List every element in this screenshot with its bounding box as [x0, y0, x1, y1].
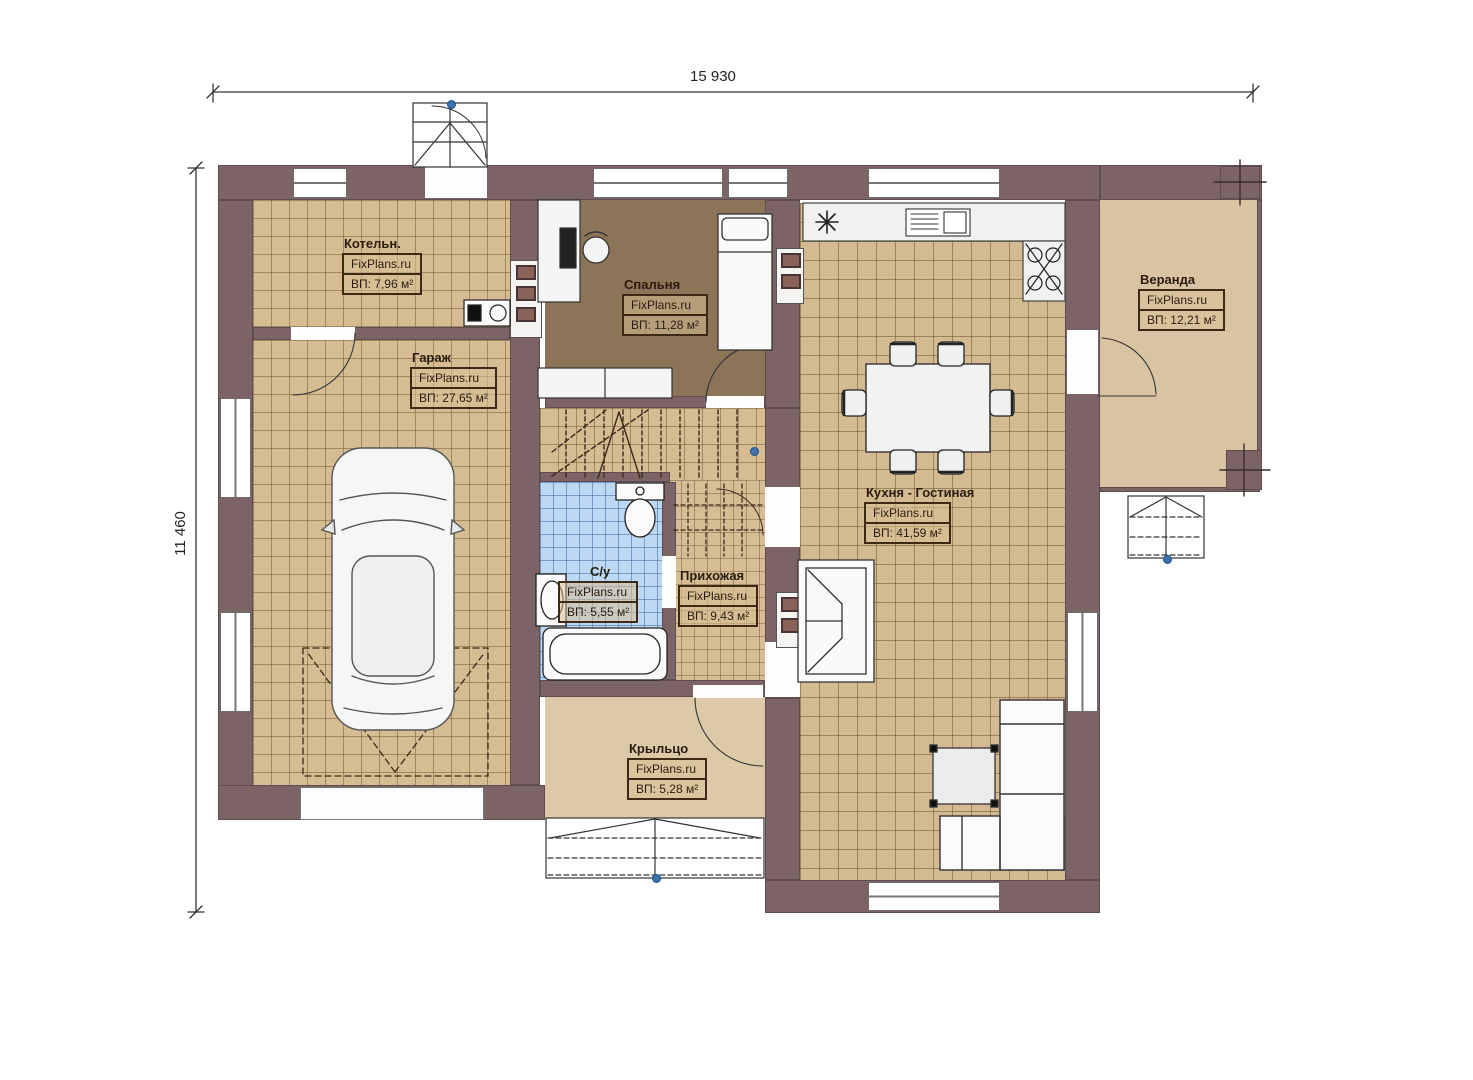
- coffee-table: [930, 745, 998, 807]
- room-name: Спальня: [624, 277, 708, 292]
- dimension-width-label: 15 930: [690, 68, 736, 85]
- room-watermark: FixPlans.ru: [866, 504, 949, 522]
- room-label-garage: Гараж FixPlans.ru ВП: 27,65 м²: [410, 350, 497, 409]
- room-watermark: FixPlans.ru: [412, 369, 495, 387]
- wardrobe: [538, 368, 672, 398]
- stairs-upper: [552, 410, 737, 478]
- room-label-kitchen-living: Кухня - Гостиная FixPlans.ru ВП: 41,59 м…: [864, 485, 974, 544]
- room-area: ВП: 5,28 м²: [629, 778, 705, 798]
- room-watermark: FixPlans.ru: [680, 587, 756, 605]
- room-watermark: FixPlans.ru: [1140, 291, 1223, 309]
- room-name: Прихожая: [680, 568, 758, 583]
- car: [322, 448, 464, 730]
- room-watermark: FixPlans.ru: [344, 255, 420, 273]
- stairs-lower: [674, 484, 763, 556]
- room-label-kotelnaya: Котельн. FixPlans.ru ВП: 7,96 м²: [342, 236, 422, 295]
- room-name: Кухня - Гостиная: [866, 485, 974, 500]
- node-dot: [447, 100, 456, 109]
- floor-plan-canvas: 15 930 11 460 Котельн. FixPlans.ru ВП: 7…: [0, 0, 1473, 1080]
- toilet: [616, 483, 664, 537]
- node-dot: [1163, 555, 1172, 564]
- bathtub: [543, 628, 667, 680]
- room-label-bedroom: Спальня FixPlans.ru ВП: 11,28 м²: [622, 277, 708, 336]
- room-watermark: FixPlans.ru: [560, 583, 636, 601]
- room-area: ВП: 41,59 м²: [866, 522, 949, 542]
- dimension-line-left: [188, 162, 204, 918]
- room-name: Гараж: [412, 350, 497, 365]
- room-watermark: FixPlans.ru: [624, 296, 706, 314]
- room-name: С/у: [590, 564, 638, 579]
- entry-steps-top: [413, 103, 487, 167]
- node-dot: [750, 447, 759, 456]
- desk: [538, 200, 580, 302]
- veranda-steps: [1128, 496, 1204, 558]
- room-name: Веранда: [1140, 272, 1225, 287]
- dining-table: [866, 364, 990, 452]
- bed: [718, 214, 772, 350]
- room-area: ВП: 7,96 м²: [344, 273, 420, 293]
- node-dot: [652, 874, 661, 883]
- dimension-height-label: 11 460: [172, 511, 189, 556]
- room-label-veranda: Веранда FixPlans.ru ВП: 12,21 м²: [1138, 272, 1225, 331]
- room-area: ВП: 12,21 м²: [1140, 309, 1223, 329]
- porch-steps: [546, 818, 764, 878]
- boiler: [464, 300, 510, 326]
- room-area: ВП: 11,28 м²: [624, 314, 706, 334]
- fireplace: [798, 560, 874, 682]
- room-label-hallway: Прихожая FixPlans.ru ВП: 9,43 м²: [678, 568, 758, 627]
- desk-chair: [583, 232, 609, 263]
- room-watermark: FixPlans.ru: [629, 760, 705, 778]
- kitchen-sink: [906, 209, 970, 236]
- room-area: ВП: 27,65 м²: [412, 387, 495, 407]
- fridge-star-icon: [816, 211, 838, 233]
- room-name: Крыльцо: [629, 741, 707, 756]
- room-label-porch: Крыльцо FixPlans.ru ВП: 5,28 м²: [627, 741, 707, 800]
- dimension-line-top: [207, 84, 1259, 102]
- room-area: ВП: 5,55 м²: [560, 601, 636, 621]
- room-label-bathroom: С/у FixPlans.ru ВП: 5,55 м²: [558, 564, 638, 623]
- room-name: Котельн.: [344, 236, 422, 251]
- room-area: ВП: 9,43 м²: [680, 605, 756, 625]
